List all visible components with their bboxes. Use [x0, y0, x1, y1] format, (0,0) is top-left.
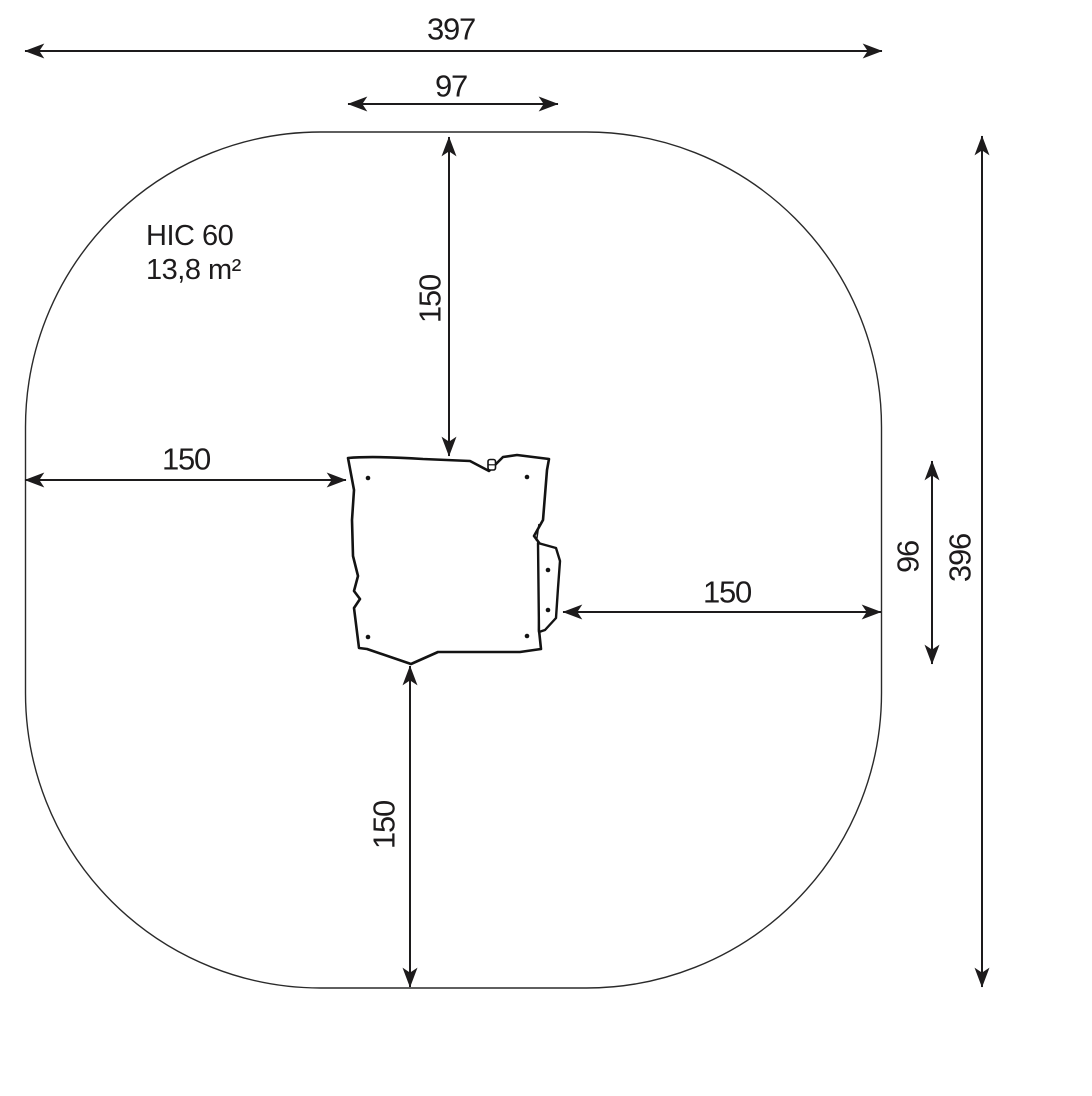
dimension-label-clearance-left: 150 [162, 444, 210, 475]
dimension-label-total-height: 396 [945, 534, 976, 582]
dimension-label-total-width: 397 [427, 14, 475, 45]
screw-hole [546, 568, 551, 573]
screw-hole [366, 476, 371, 481]
equipment-footprint [348, 455, 549, 664]
screw-hole [525, 475, 530, 480]
screw-hole [366, 635, 371, 640]
equipment-side-panel [538, 543, 560, 632]
dimension-label-clearance-top: 150 [415, 275, 446, 323]
dimension-label-clearance-right: 150 [703, 577, 751, 608]
screw-hole [546, 608, 551, 613]
hic-value: HIC 60 [146, 219, 241, 253]
diagram-drawing [0, 0, 1092, 1096]
area-value: 13,8 m² [146, 253, 241, 287]
dimension-label-equipment-width: 97 [435, 71, 467, 102]
dimension-label-equipment-height: 96 [893, 541, 924, 573]
safety-zone-diagram: 397 97 150 150 150 150 96 396 HIC 60 13,… [0, 0, 1092, 1096]
screw-hole [525, 634, 530, 639]
dimension-label-clearance-bottom: 150 [369, 801, 400, 849]
hic-area-label: HIC 60 13,8 m² [146, 219, 241, 287]
